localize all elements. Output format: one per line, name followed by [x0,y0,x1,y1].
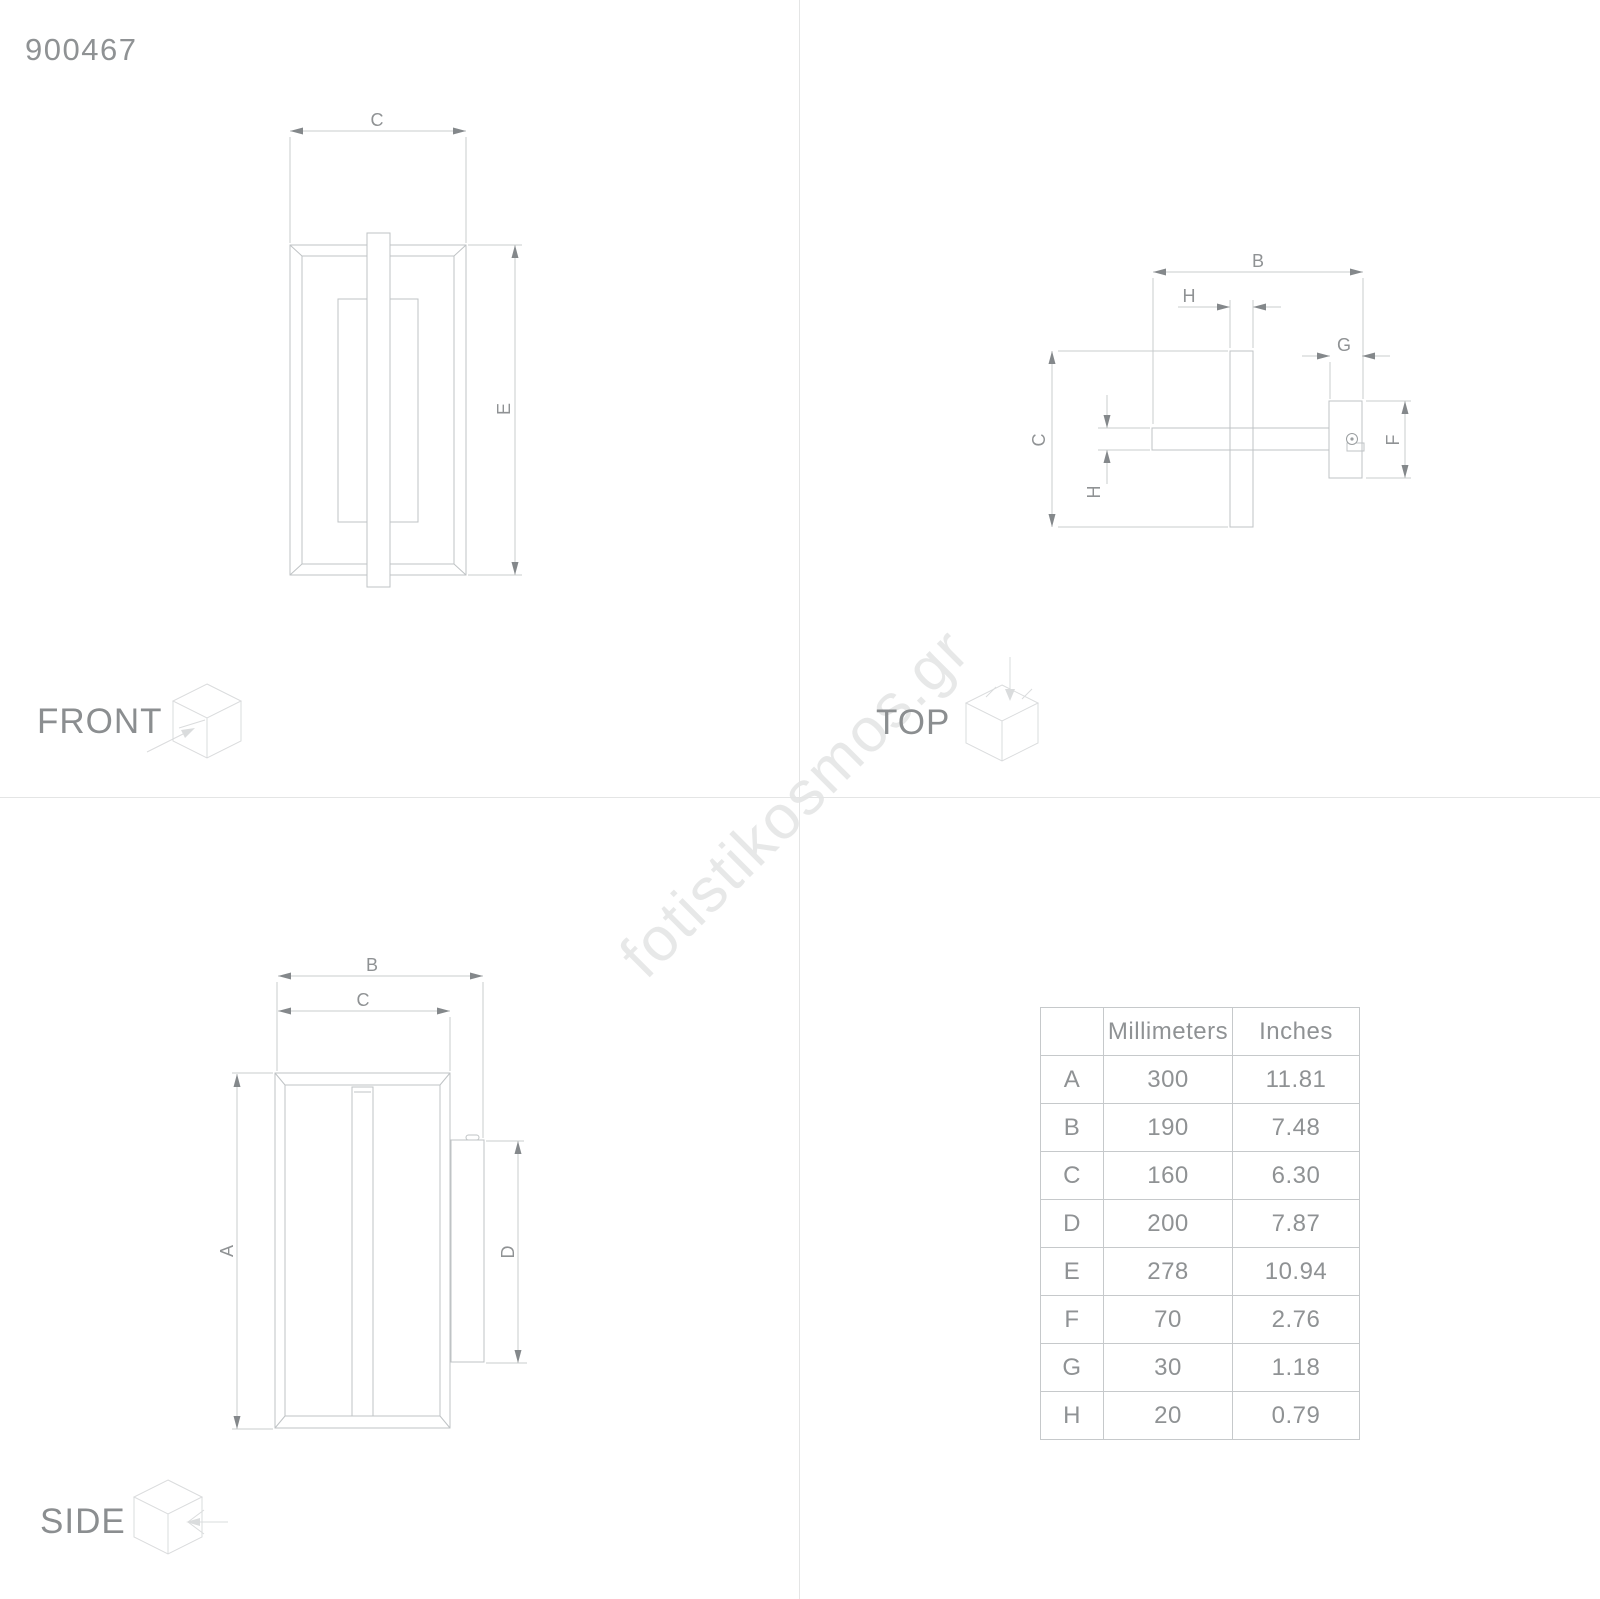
dim-letter-cell: G [1041,1344,1104,1392]
dim-letter-cell: A [1041,1056,1104,1104]
side-dim-d-label: D [499,1246,517,1259]
dim-inches-cell: 1.18 [1233,1344,1360,1392]
dim-inches-cell: 7.48 [1233,1104,1360,1152]
side-view-cube-icon [128,1478,232,1562]
dim-mm-cell: 190 [1104,1104,1233,1152]
table-row: A 300 11.81 [1041,1056,1360,1104]
dim-letter-cell: B [1041,1104,1104,1152]
dim-mm-cell: 70 [1104,1296,1233,1344]
dim-letter-cell: H [1041,1392,1104,1440]
table-row: C 160 6.30 [1041,1152,1360,1200]
table-row: H 20 0.79 [1041,1392,1360,1440]
dim-inches-cell: 10.94 [1233,1248,1360,1296]
table-row: B 190 7.48 [1041,1104,1360,1152]
table-row: F 70 2.76 [1041,1296,1360,1344]
dim-mm-cell: 300 [1104,1056,1233,1104]
dimensions-table: Millimeters Inches A 300 11.81 B 190 7.4… [1040,1007,1360,1440]
dim-mm-cell: 278 [1104,1248,1233,1296]
dim-inches-cell: 7.87 [1233,1200,1360,1248]
table-header-row: Millimeters Inches [1041,1008,1360,1056]
dim-inches-cell: 0.79 [1233,1392,1360,1440]
dim-mm-cell: 30 [1104,1344,1233,1392]
side-dim-c-label: C [357,991,370,1009]
table-row: D 200 7.87 [1041,1200,1360,1248]
side-view-label: SIDE [40,1502,126,1542]
dim-letter-cell: E [1041,1248,1104,1296]
spec-sheet-page: fotistikosmos.gr 900467 [0,0,1600,1599]
dim-mm-cell: 200 [1104,1200,1233,1248]
header-millimeters-cell: Millimeters [1104,1008,1233,1056]
dim-letter-cell: D [1041,1200,1104,1248]
header-empty-cell [1041,1008,1104,1056]
dim-letter-cell: C [1041,1152,1104,1200]
table-row: G 30 1.18 [1041,1344,1360,1392]
dim-mm-cell: 160 [1104,1152,1233,1200]
dim-inches-cell: 11.81 [1233,1056,1360,1104]
dim-inches-cell: 6.30 [1233,1152,1360,1200]
table-row: E 278 10.94 [1041,1248,1360,1296]
header-inches-cell: Inches [1233,1008,1360,1056]
side-view-drawing [0,0,1600,1599]
dim-inches-cell: 2.76 [1233,1296,1360,1344]
dim-letter-cell: F [1041,1296,1104,1344]
dim-mm-cell: 20 [1104,1392,1233,1440]
side-dim-a-label: A [218,1245,236,1257]
side-dim-b-label: B [366,956,378,974]
